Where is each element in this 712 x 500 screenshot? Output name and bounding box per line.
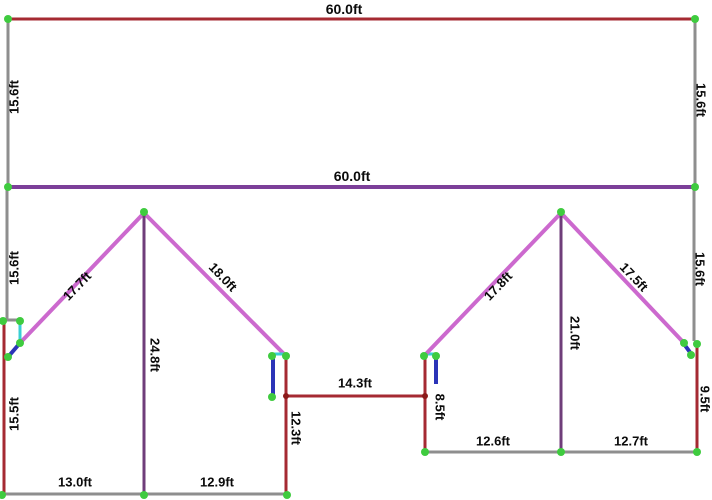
measurement-diagram: 60.0ft15.6ft15.6ft60.0ft15.6ft15.6ft17.7… [0,0,712,500]
vertex-dot [4,353,12,361]
vertex-dot [4,183,12,191]
vertex-dot [693,340,701,348]
junction-dot [422,393,428,399]
label-breezeway-width: 14.3ft [338,376,373,391]
label-left-house-left-wall: 15.5ft [7,396,22,431]
vertex-dot [16,317,24,325]
vertex-dot [687,351,695,359]
vertex-dot [691,183,699,191]
vertex-dot [557,448,565,456]
vertex-dot [16,339,24,347]
vertex-dot [282,352,290,360]
vertex-dot [432,352,440,360]
label-right-roof-west: 17.8ft [481,268,516,303]
vertex-dot [268,352,276,360]
label-left-bottom-west: 13.0ft [58,475,93,490]
label-left-ridge-height: 24.8ft [148,338,163,373]
label-right-house-left-wall: 8.5ft [433,394,448,421]
vertex-dot [680,339,688,347]
label-left-wall-upper: 15.6ft [7,79,22,114]
vertex-dot [421,448,429,456]
left-roof-east-line [144,213,286,356]
label-right-ridge-height: 21.0ft [568,316,583,351]
vertex-dot [4,15,12,23]
vertex-dot [691,15,699,23]
vertex-dot [140,491,148,499]
label-left-bottom-east: 12.9ft [200,475,235,490]
measurement-diagram-svg: 60.0ft15.6ft15.6ft60.0ft15.6ft15.6ft17.7… [0,0,712,500]
vertex-dot [693,448,701,456]
label-left-roof-east: 18.0ft [206,260,241,295]
junction-dot [283,393,289,399]
vertex-dot [557,208,565,216]
label-left-house-right-wall: 12.3ft [289,411,304,446]
label-right-wall-lower: 15.6ft [693,252,708,287]
label-mid-width: 60.0ft [334,168,371,184]
label-left-roof-west: 17.7ft [60,268,95,303]
label-top-width: 60.0ft [326,1,363,17]
label-right-bottom-west: 12.6ft [476,434,511,449]
vertex-dot [140,208,148,216]
label-right-bottom-east: 12.7ft [614,434,649,449]
label-left-wall-lower: 15.6ft [7,250,22,285]
label-right-house-right-wall: 9.5ft [698,386,712,413]
vertex-dot [420,352,428,360]
vertex-dot [283,491,291,499]
label-right-wall-upper: 15.6ft [694,83,709,118]
vertex-dot [268,393,276,401]
